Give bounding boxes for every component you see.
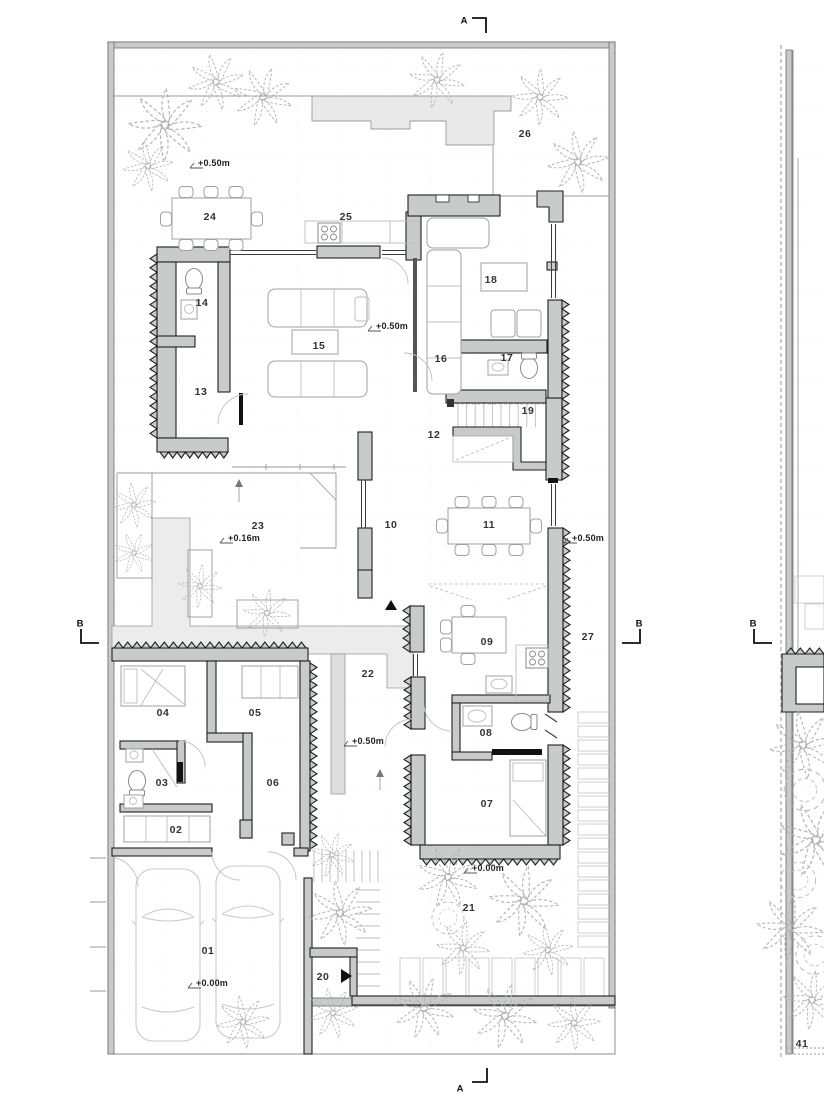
garden-wall [331,654,345,794]
section-letter-a_bottom: A [457,1084,464,1095]
level-annotation-4: +0.50m [352,736,384,746]
room-label-11: 11 [483,519,495,531]
room-label-14: 14 [196,297,209,309]
section-bracket-b-right-outer [754,629,772,643]
room-label-01: 01 [202,945,215,957]
glass-wall [413,258,417,392]
door-leaf [492,749,542,755]
room-label-10: 10 [385,519,398,531]
room-label-18: 18 [485,274,498,286]
room-label-15: 15 [313,340,326,352]
drawing-canvas: 0102030405060708091011121314151617181920… [0,0,824,1099]
level-annotation-6: +0.00m [196,978,228,988]
room-label-22: 22 [362,668,375,680]
room-label-19: 19 [522,405,535,417]
room-label-04: 04 [157,707,170,719]
closet-05 [242,666,298,698]
stove-icon [526,648,548,668]
bed-07 [510,760,546,836]
level-annotation-5: +0.00m [472,863,504,873]
section-letter-b_right_inner: B [636,619,643,630]
stove-icon [318,223,340,243]
room-label-41: 41 [796,1038,809,1050]
section-letter-b_left: B [77,619,84,630]
section-bracket-a-top [472,18,486,33]
room-label-21: 21 [463,902,476,914]
door-leaf [177,762,183,782]
room-label-07: 07 [481,798,494,810]
room-label-17: 17 [501,352,514,364]
border-left [108,42,114,1054]
room-label-09: 09 [481,636,494,648]
room-label-06: 06 [267,777,280,789]
room-label-05: 05 [249,707,262,719]
section-letter-a_top: A [461,16,468,27]
level-annotation-1: +0.50m [376,321,408,331]
room-label-03: 03 [156,777,169,789]
border-top [108,42,615,48]
room-label-12: 12 [428,429,441,441]
level-annotation-2: +0.50m [572,533,604,543]
section-letter-b_right_outer: B [750,619,757,630]
door-leaf [239,393,243,425]
room-label-24: 24 [204,211,217,223]
room-label-16: 16 [435,353,448,365]
room-label-20: 20 [317,971,330,983]
cabinets-02 [124,816,210,842]
room-label-27: 27 [582,631,595,643]
level-annotation-0: +0.50m [198,158,230,168]
room-label-26: 26 [519,128,532,140]
level-annotation-3: +0.16m [228,533,260,543]
section-bracket-a-bottom [472,1068,487,1082]
room-label-08: 08 [480,727,493,739]
section-bracket-b-right-inner [622,629,640,643]
section-bracket-b-left [81,629,99,643]
room-label-02: 02 [170,824,183,836]
bed-04 [121,666,185,706]
room-label-13: 13 [195,386,208,398]
room-label-23: 23 [252,520,265,532]
floor-plan: 0102030405060708091011121314151617181920… [0,0,824,1099]
room-label-25: 25 [340,211,353,223]
